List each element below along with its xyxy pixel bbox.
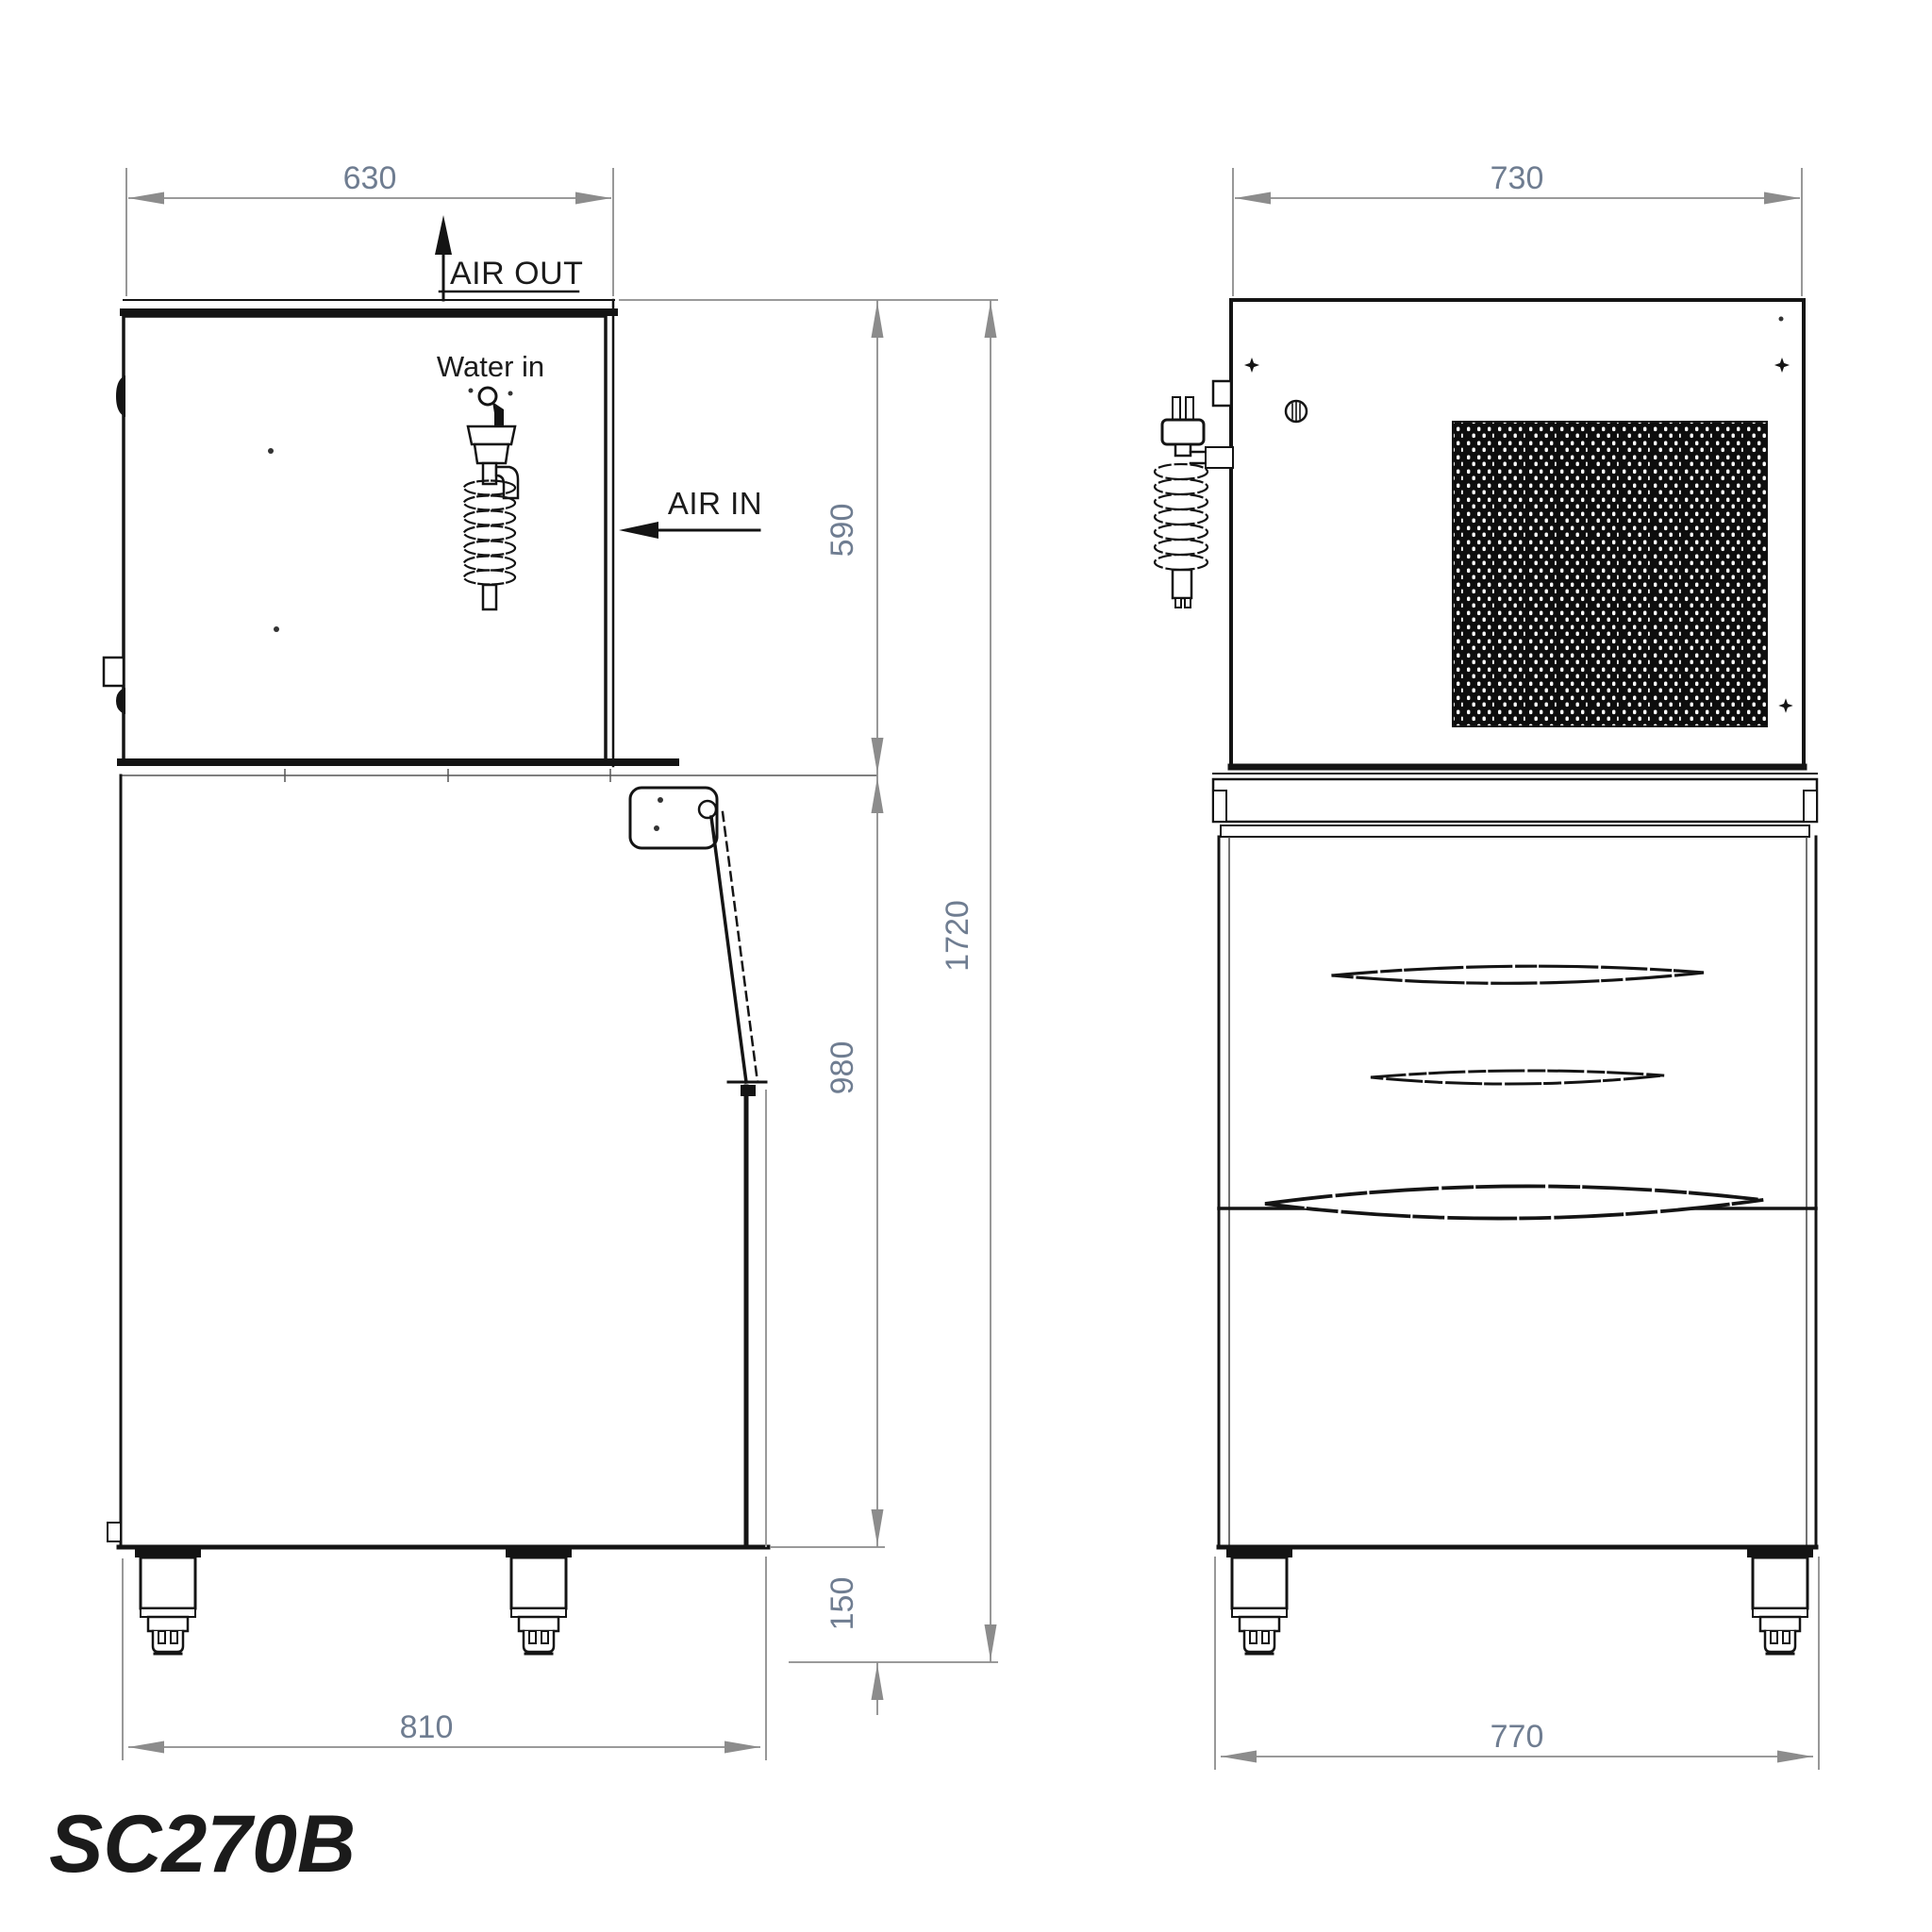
adjustable-foot	[506, 1547, 572, 1654]
door-groove-upper	[1333, 966, 1704, 983]
bin-rim	[1213, 774, 1817, 837]
adjustable-foot	[1747, 1547, 1813, 1654]
sloped-door-chute	[711, 812, 766, 1096]
door-groove-lower	[1265, 1186, 1762, 1218]
dim-label-bin-height: 980	[824, 1041, 860, 1095]
vent-grille	[1453, 422, 1767, 726]
side-view: 630 AIR OUT Water in	[104, 160, 998, 1760]
dim-label-base-depth: 810	[400, 1709, 454, 1745]
air-in-callout: AIR IN	[619, 486, 762, 539]
adjustable-foot	[135, 1547, 201, 1654]
cord-coil	[1155, 464, 1207, 570]
technical-drawing-page: 630 AIR OUT Water in	[0, 0, 1932, 1932]
storage-bin-front	[1219, 837, 1816, 1547]
front-view: 730	[1155, 160, 1819, 1770]
bin-tab	[108, 1523, 121, 1541]
head-cabinet-rear	[1213, 300, 1804, 767]
dim-label-top-width: 630	[343, 160, 397, 196]
cord-tab	[1213, 381, 1231, 406]
water-in-label: Water in	[437, 350, 544, 383]
air-out-callout: AIR OUT	[435, 215, 583, 300]
dim-top-width-front: 730	[1233, 160, 1802, 296]
dim-label-top-width-front: 730	[1491, 160, 1544, 196]
side-clip-icon	[116, 375, 125, 417]
dimension-drawing: 630 AIR OUT Water in	[0, 0, 1932, 1932]
storage-bin-outline	[108, 762, 877, 1547]
dim-label-top-height: 590	[824, 504, 860, 558]
dim-label-base-width-front: 770	[1491, 1719, 1544, 1755]
power-cord-icon	[1155, 397, 1233, 608]
screw-head-icon	[1286, 401, 1307, 422]
dim-base-width-front: 770	[1215, 1557, 1819, 1770]
door-groove-middle	[1371, 1071, 1663, 1084]
legs-front-view	[1226, 1547, 1813, 1654]
side-clip-icon	[116, 688, 125, 714]
adjustable-foot	[1226, 1547, 1292, 1654]
dim-base-depth: 810	[123, 1557, 766, 1760]
dim-label-overall-height: 1720	[940, 900, 975, 972]
air-out-label: AIR OUT	[450, 256, 583, 291]
air-in-label: AIR IN	[668, 486, 762, 521]
legs-side-view	[135, 1547, 572, 1654]
side-tab	[104, 658, 124, 686]
dim-label-leg-height: 150	[824, 1577, 860, 1631]
door-hinge-bracket	[630, 788, 717, 848]
model-number: SC270B	[49, 1799, 356, 1890]
